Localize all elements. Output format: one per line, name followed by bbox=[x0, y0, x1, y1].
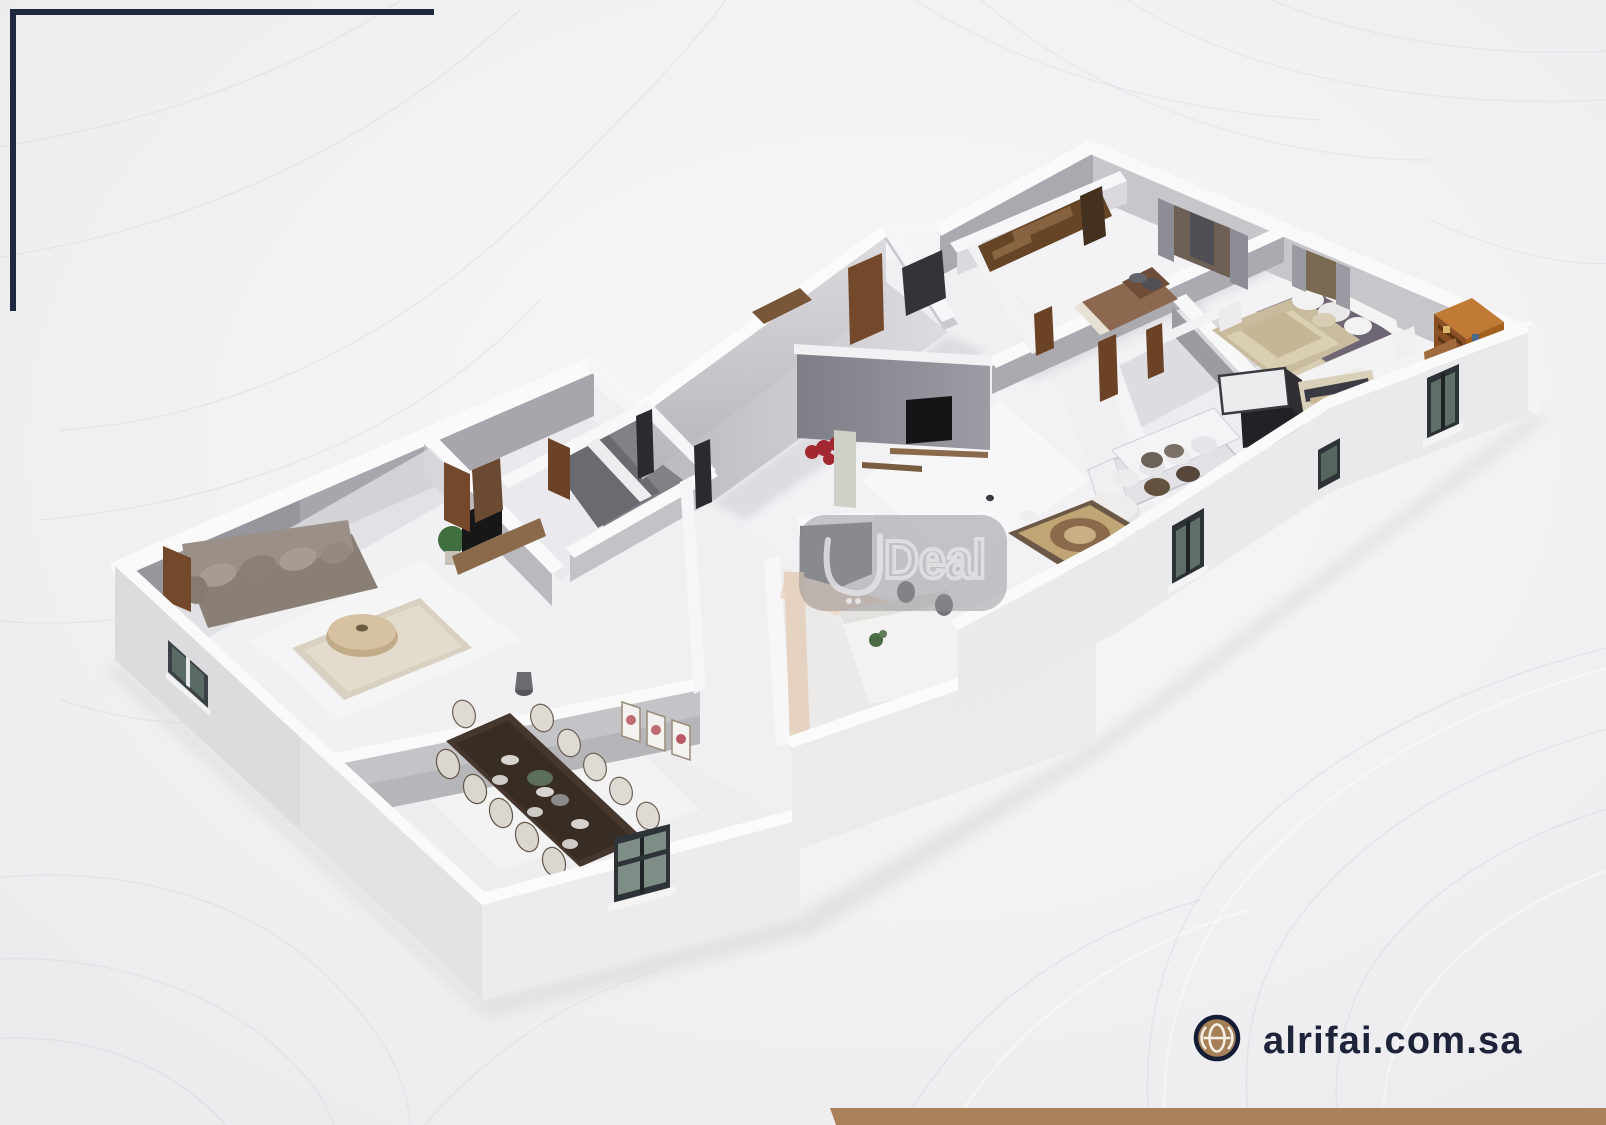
svg-text:Deal: Deal bbox=[884, 530, 986, 590]
svg-text:alrifai.com.sa: alrifai.com.sa bbox=[1263, 1020, 1523, 1062]
